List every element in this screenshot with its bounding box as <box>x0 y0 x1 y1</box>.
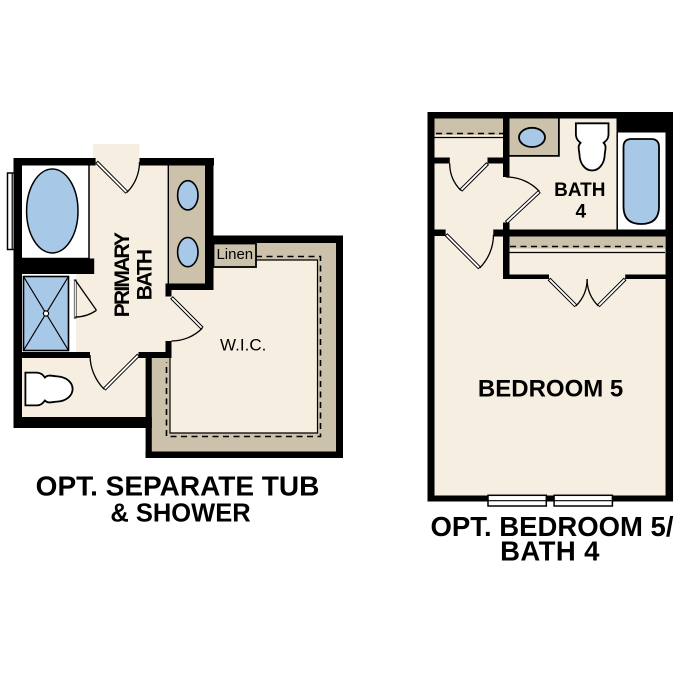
svg-text:W.I.C.: W.I.C. <box>220 336 266 355</box>
svg-text:BATH 4: BATH 4 <box>500 536 600 567</box>
svg-text:BEDROOM 5: BEDROOM 5 <box>478 376 623 403</box>
svg-text:Linen: Linen <box>216 246 253 263</box>
svg-text:BATH: BATH <box>134 250 157 300</box>
svg-text:PRIMARY: PRIMARY <box>111 232 134 317</box>
svg-text:4: 4 <box>576 201 587 222</box>
svg-text:BATH: BATH <box>554 180 605 201</box>
svg-text:OPT. SEPARATE TUB: OPT. SEPARATE TUB <box>36 471 320 502</box>
svg-text:& SHOWER: & SHOWER <box>110 500 250 528</box>
